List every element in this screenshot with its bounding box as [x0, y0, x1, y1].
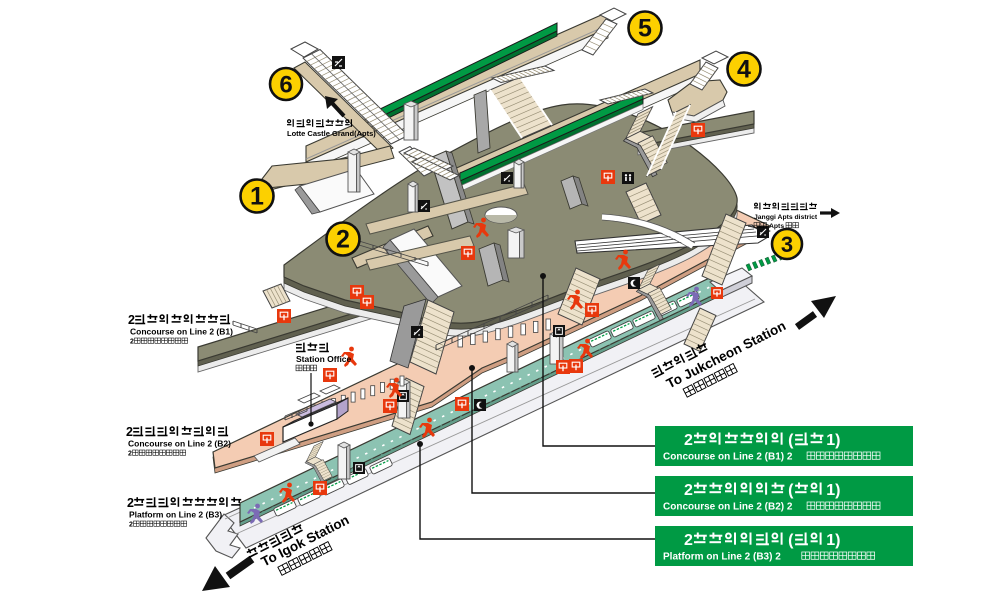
svg-text:(: ( [788, 482, 794, 499]
svg-text:1): 1) [826, 532, 840, 549]
svg-text:Concourse on Line 2 (B1): Concourse on Line 2 (B1) [130, 327, 233, 337]
svg-text:4: 4 [737, 56, 751, 84]
svg-text:2: 2 [684, 482, 693, 499]
svg-text:Concourse on Line 2 (B2): Concourse on Line 2 (B2) [128, 439, 231, 449]
svg-text:(: ( [788, 432, 794, 449]
svg-text:2: 2 [129, 522, 133, 529]
svg-text:2: 2 [336, 226, 350, 254]
svg-text:Janggi Apts district: Janggi Apts district [754, 214, 818, 221]
svg-text:2: 2 [127, 496, 134, 510]
svg-text:1): 1) [826, 432, 840, 449]
svg-text:(: ( [788, 532, 794, 549]
svg-text:5: 5 [638, 15, 652, 43]
svg-text:3: 3 [781, 232, 793, 257]
svg-text:2: 2 [130, 339, 134, 346]
svg-text:2: 2 [684, 532, 693, 549]
svg-text:Lotte Castle Grand(Apts): Lotte Castle Grand(Apts) [287, 129, 376, 138]
svg-text:1: 1 [250, 183, 264, 211]
svg-text:1): 1) [826, 482, 840, 499]
svg-text:2: 2 [128, 451, 132, 458]
svg-text:Concourse on Line 2 (B1) 2: Concourse on Line 2 (B1) 2 [663, 452, 793, 463]
svg-text:Concourse on Line 2 (B2) 2: Concourse on Line 2 (B2) 2 [663, 502, 793, 513]
svg-text:Platform on Line 2 (B3) 2: Platform on Line 2 (B3) 2 [663, 552, 781, 563]
svg-text:2: 2 [126, 425, 133, 439]
svg-text:Platform on Line 2 (B3): Platform on Line 2 (B3) [129, 510, 222, 520]
svg-text:6: 6 [279, 71, 292, 98]
svg-text:2: 2 [684, 432, 693, 449]
svg-text:Station Office: Station Office [296, 354, 352, 364]
svg-text:2: 2 [128, 313, 135, 327]
